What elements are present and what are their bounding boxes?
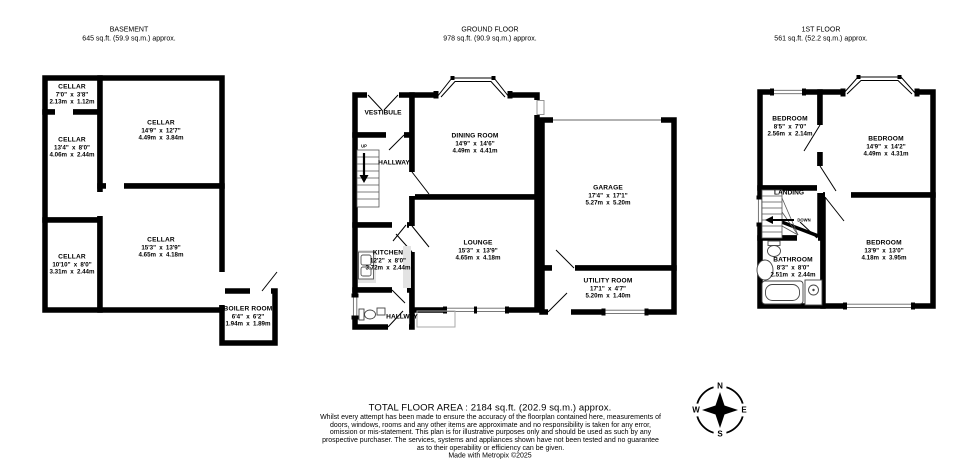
basement-header: BASEMENT 645 sq.ft. (59.9 sq.m.) approx. (82, 26, 175, 43)
room-label-bedroom-1: BEDROOM 8'5" x 7'0" 2.56m x 2.14m (768, 116, 813, 139)
toilet-icon (768, 241, 781, 257)
room-label-garage: GARAGE 17'4" x 17'1" 5.27m x 5.20m (586, 185, 631, 208)
room-label-vestibule: VESTIBULE (364, 110, 401, 117)
basement-walls (45, 78, 275, 343)
room-label-cellar-5: CELLAR 15'3" x 13'9" 4.65m x 4.18m (139, 237, 184, 260)
first-area: 561 sq.ft. (52.2 sq.m.) approx. (774, 35, 867, 44)
compass-west-label: W (692, 406, 700, 415)
ground-title: GROUND FLOOR (443, 26, 536, 35)
floorplan-page: BASEMENT 645 sq.ft. (59.9 sq.m.) approx.… (0, 0, 980, 464)
basement-area: 645 sq.ft. (59.9 sq.m.) approx. (82, 35, 175, 44)
credit-text: Made with Metropix ©2025 (448, 453, 531, 460)
stairs-up-label: UP (361, 144, 367, 149)
room-label-bedroom-2: BEDROOM 14'9" x 14'2" 4.49m x 4.31m (864, 136, 909, 159)
floorplan-drawing (0, 0, 980, 464)
room-label-cellar-3: CELLAR 13'4" x 8'0" 4.06m x 2.44m (50, 137, 95, 160)
room-label-cellar-4: CELLAR 10'10" x 8'0" 3.31m x 2.44m (50, 254, 95, 277)
room-label-kitchen: KITCHEN 12'2" x 8'0" 3.72m x 2.44m (366, 250, 411, 273)
compass-east-label: E (741, 406, 746, 415)
room-label-cellar-2: CELLAR 14'9" x 12'7" 4.49m x 3.84m (139, 120, 184, 143)
first-title: 1ST FLOOR (774, 26, 867, 35)
room-label-dining-room: DINING ROOM 14'9" x 14'6" 4.49m x 4.41m (451, 133, 498, 156)
room-label-bedroom-3: BEDROOM 13'9" x 13'0" 4.18m x 3.95m (862, 240, 907, 263)
stairs-up-icon (357, 150, 379, 207)
compass-south-label: S (717, 430, 722, 439)
total-floor-area: TOTAL FLOOR AREA : 2184 sq.ft. (202.9 sq… (369, 403, 612, 414)
room-label-lounge: LOUNGE 15'3" x 13'9" 4.65m x 4.18m (456, 240, 501, 263)
room-label-bathroom: BATHROOM 8'3" x 8'0" 2.51m x 2.44m (771, 257, 816, 280)
porch-outline (417, 311, 455, 327)
shower-icon (805, 280, 822, 305)
compass-north-label: N (717, 382, 723, 391)
room-label-hallway: HALLWAY (378, 160, 410, 167)
basement-title: BASEMENT (82, 26, 175, 35)
ground-header: GROUND FLOOR 978 sq.ft. (90.9 sq.m.) app… (443, 26, 536, 43)
first-header: 1ST FLOOR 561 sq.ft. (52.2 sq.m.) approx… (774, 26, 867, 43)
room-label-hallway-rear: HALLWAY (386, 314, 418, 321)
room-label-utility-room: UTILITY ROOM 17'1" x 4'7" 5.20m x 1.40m (584, 278, 633, 301)
room-label-boiler-room: BOILER ROOM 6'4" x 6'2" 1.94m x 1.89m (224, 306, 273, 329)
bathtub-icon (762, 281, 803, 304)
room-label-landing: LANDING (774, 190, 804, 197)
stairs-down-label: DOWN (797, 218, 810, 223)
ground-area: 978 sq.ft. (90.9 sq.m.) approx. (443, 35, 536, 44)
room-label-cellar-1: CELLAR 7'0" x 3'8" 2.13m x 1.12m (50, 84, 95, 107)
disclaimer-text: Whilst every attempt has been made to en… (320, 414, 661, 453)
